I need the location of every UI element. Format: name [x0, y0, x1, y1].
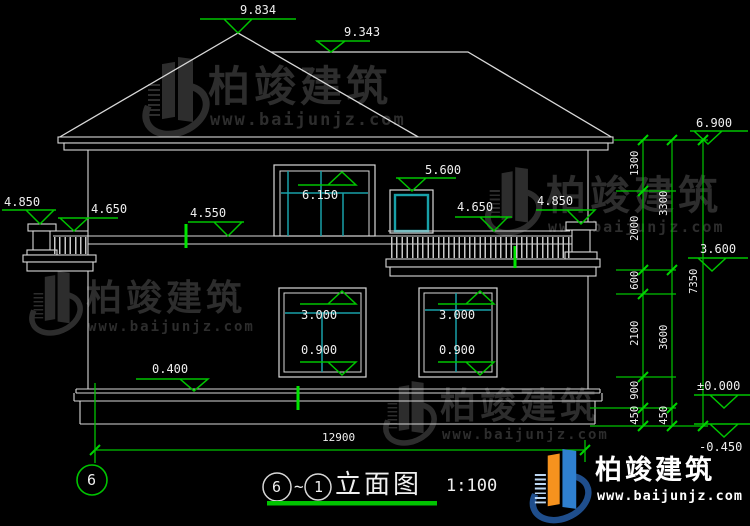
level-left-post: 4.850: [4, 196, 40, 208]
level-window-head-left: 3.000: [301, 309, 337, 321]
eaves-band: [58, 137, 613, 150]
level-plinth: 0.400: [152, 363, 188, 375]
dim-inner-450: 450: [630, 393, 641, 437]
dim-overall-width: 12900: [322, 432, 355, 443]
dim-inner-2100: 2100: [630, 311, 641, 355]
brand-logo-icon: [533, 450, 586, 516]
level-second-floor: 3.600: [700, 243, 736, 255]
level-small-window-head: 5.600: [425, 164, 461, 176]
window-small: [390, 190, 433, 233]
dim-middle-3300: 3300: [659, 181, 670, 225]
level-window-sill-left: 0.900: [301, 344, 337, 356]
drawing-title: 立面图: [335, 471, 422, 497]
window-lower-right: [419, 288, 497, 377]
dim-inner-600: 600: [630, 258, 641, 302]
brand-logo-url: www.baijunjz.com: [597, 490, 743, 504]
level-ground-zero: ±0.000: [697, 380, 740, 392]
level-roof-peak: 9.834: [240, 4, 276, 16]
level-floor-band: 4.550: [190, 207, 226, 219]
level-eaves: 6.900: [696, 117, 732, 129]
axis-bubble-label: 6: [87, 473, 96, 488]
dim-outer-7350: 7350: [689, 259, 700, 303]
dimension-ticks: [90, 135, 708, 455]
level-window-sill-right: 0.900: [439, 344, 475, 356]
level-big-window-head: 6.150: [302, 189, 338, 201]
title-end-bubble: 1: [314, 480, 323, 495]
level-right-rail: 4.650: [457, 201, 493, 213]
level-window-head-right: 3.000: [439, 309, 475, 321]
brand-logo: 柏竣建筑 www.baijunjz.com: [533, 450, 750, 520]
balusters-right: [391, 237, 571, 258]
dim-inner-2000: 2000: [630, 206, 641, 250]
drawing-scale: 1:100: [446, 478, 497, 495]
level-roof-ridge: 9.343: [344, 26, 380, 38]
brand-logo-name: 柏竣建筑: [595, 457, 715, 484]
balusters-left: [54, 237, 88, 254]
level-left-rail: 4.650: [91, 203, 127, 215]
level-right-post: 4.850: [537, 195, 573, 207]
dim-middle-3600: 3600: [659, 315, 670, 359]
dim-inner-1300: 1300: [630, 141, 641, 185]
elevation-sheet: 柏竣建筑 www.baijunjz.com 柏竣建筑 www.baijunjz.…: [0, 0, 750, 526]
dim-middle-450: 450: [659, 393, 670, 437]
title-tilde: ~: [294, 479, 304, 495]
title-start-bubble: 6: [272, 480, 281, 495]
